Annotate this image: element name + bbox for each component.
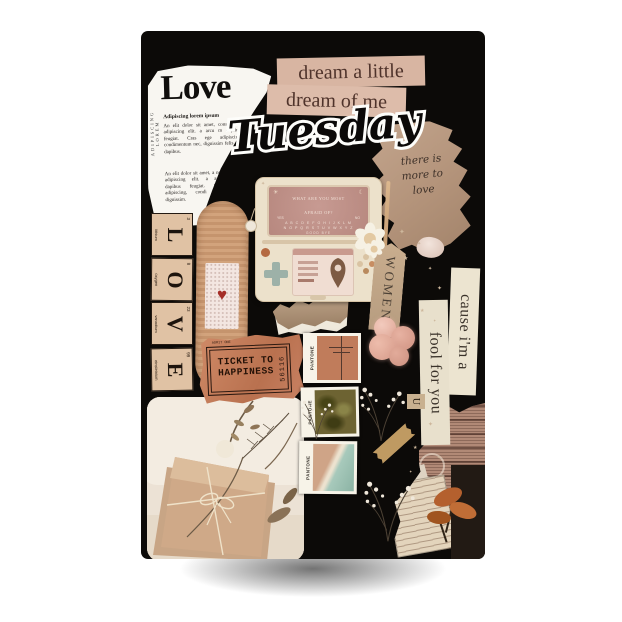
star-icon [403,255,408,262]
console-button-y [363,268,369,274]
star-icon [417,241,421,247]
star-icon [428,421,433,428]
babys-breath-sprig [357,383,407,443]
women-tag-label: WOMEN [376,256,398,323]
bouquet-photo [147,397,304,559]
charm-bead [245,220,257,232]
ticket-title-line2: HAPPINESS [218,364,287,378]
star-icon [399,228,405,236]
newspaper-paragraph: An elit dolor sit amet, a nor adipiscing… [165,171,224,205]
bouquet-photo-art [147,397,304,559]
ticket-frame: TICKET TO HAPPINESS 56116 [209,346,289,392]
fool-strip-label: fool for you [425,331,444,414]
pantone-swatch-pole [317,336,358,380]
ticket-serial: 56116 [278,355,287,381]
star-icon [261,181,265,187]
pom-flower [389,346,409,366]
menu-line [298,273,318,276]
menu-line [298,267,318,270]
planchette-icon [326,257,350,291]
ouija-no: NO [355,216,360,220]
love-tile-o: 8 O oxygen [151,258,193,301]
heart-icon [205,285,239,305]
bottom-screen-titlebar [293,249,353,255]
love-tile-e: 99 E einsteinium [151,348,194,392]
star-icon [413,445,417,451]
menu-line [298,261,318,264]
star-icon [428,266,432,272]
pantone-brand-label: PANTONE [305,455,310,479]
cause-strip-label: cause i'm a [453,293,474,369]
menu-line [298,279,314,282]
bandaid-pad [205,263,240,329]
babys-breath-sprig [361,471,417,549]
pantone-card-terracotta: PANTONE [303,333,361,383]
pantone-brand-label: PANTONE [309,346,314,370]
babys-breath-sprig [299,397,335,441]
dream-strip-1: dream a little [277,55,426,88]
newspaper-subhead: Adipiscing lorem ipsum [163,113,219,120]
star-icon [437,455,441,461]
cutout-letter-chip: U [407,394,425,409]
console-round-button [261,248,270,257]
pantone-swatch-shore [313,444,354,491]
console-button-x [357,261,363,267]
love-tile-l: 3 L lithium [151,213,193,256]
love-tile-v: 23 V vanadium [151,302,193,345]
star-icon [433,318,436,323]
happiness-ticket: ADMIT ONE TICKET TO HAPPINESS 56116 [198,333,307,406]
tuesday-script-title: Tuesday Tuesday [226,97,422,191]
dpad-icon [264,270,288,278]
ouija-question-line1: WHAT ARE YOU MOST [269,196,368,201]
ouija-yes: YES [277,216,284,220]
cause-strip: cause i'm a [447,268,480,396]
star-icon [420,308,424,314]
collage-poster: ADIPISCING LOREM Love Adipiscing lorem i… [141,31,485,559]
console-bottom-screen [292,248,354,296]
pantone-card-beach: PANTONE [299,441,358,495]
console-start-button [310,295,326,300]
torn-paper-strip [272,296,349,339]
star-icon [437,285,442,292]
daisy-flower-icon [364,239,384,259]
newspaper-side-text: ADIPISCING LOREM [149,103,161,163]
newspaper-headline: Love [160,66,231,108]
ticket-corner-text: ADMIT ONE [212,341,231,346]
